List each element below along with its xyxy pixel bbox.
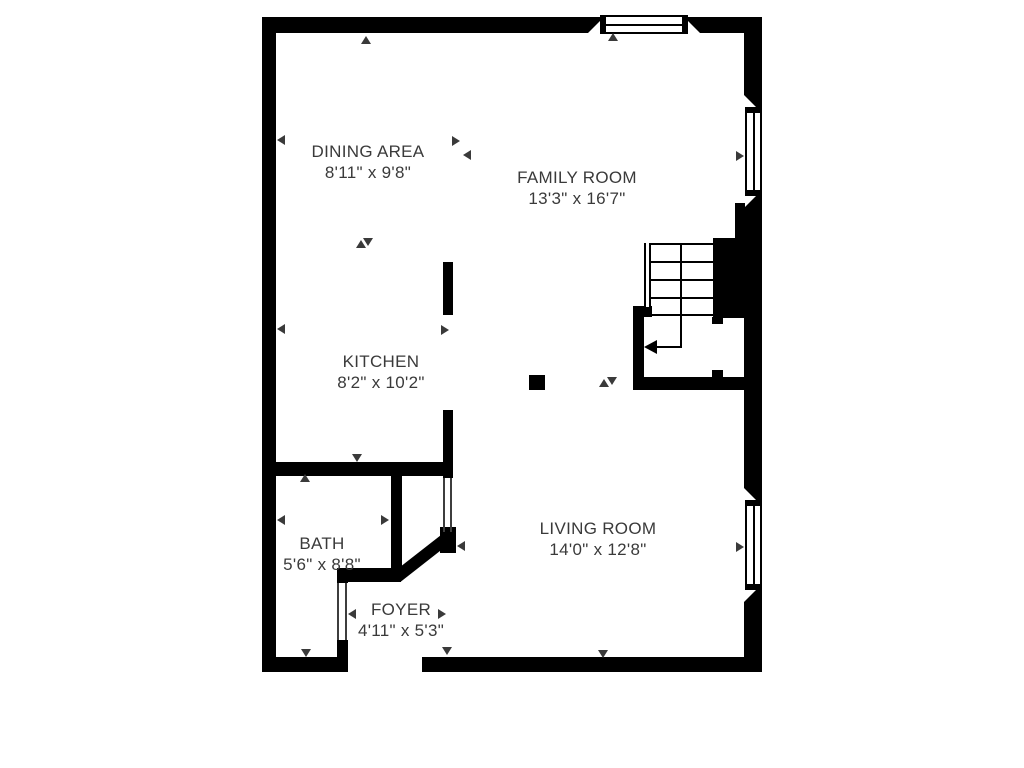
dimension-arrow-up-icon bbox=[608, 33, 618, 41]
stair-direction-line bbox=[656, 346, 682, 348]
room-label-kitchen: KITCHEN 8'2" x 10'2" bbox=[337, 351, 424, 393]
room-label-bath: BATH 5'6" x 8'8" bbox=[283, 533, 361, 575]
room-dimensions: 8'11" x 9'8" bbox=[312, 162, 425, 183]
room-name: LIVING ROOM bbox=[540, 518, 657, 539]
window-right-upper bbox=[745, 107, 762, 196]
wall-bath-right bbox=[391, 474, 402, 570]
wall-right-lower bbox=[744, 590, 762, 672]
dimension-arrow-up-icon bbox=[361, 36, 371, 44]
room-name: FAMILY ROOM bbox=[517, 167, 637, 188]
post-column bbox=[529, 375, 545, 390]
wall-foyer-lower-stub bbox=[337, 640, 348, 672]
room-label-foyer: FOYER 4'11" x 5'3" bbox=[358, 599, 444, 641]
dimension-arrow-down-icon bbox=[352, 454, 362, 462]
dimension-arrow-left-icon bbox=[277, 135, 285, 145]
doorway-jamb-line bbox=[337, 583, 339, 640]
doorway-jamb-line bbox=[345, 583, 347, 640]
room-name: DINING AREA bbox=[312, 141, 425, 162]
stair-direction-line bbox=[680, 243, 682, 348]
floorplan-canvas: DINING AREA 8'11" x 9'8" FAMILY ROOM 13'… bbox=[0, 0, 1024, 768]
dimension-arrow-right-icon bbox=[736, 542, 744, 552]
dimension-arrow-left-icon bbox=[457, 541, 465, 551]
dimension-arrow-left-icon bbox=[277, 324, 285, 334]
stairs-direction-arrow-icon bbox=[644, 340, 657, 354]
wall-understair-bottom bbox=[633, 377, 762, 390]
room-name: FOYER bbox=[358, 599, 444, 620]
room-dimensions: 14'0" x 12'8" bbox=[540, 539, 657, 560]
dimension-arrow-down-icon bbox=[607, 377, 617, 385]
wall-bottom-right bbox=[422, 657, 762, 672]
room-dimensions: 13'3" x 16'7" bbox=[517, 188, 637, 209]
closet-door-jamb bbox=[712, 370, 723, 377]
dimension-arrow-right-icon bbox=[736, 151, 744, 161]
wall-left bbox=[262, 17, 276, 672]
wall-landing-left bbox=[633, 306, 644, 390]
room-dimensions: 5'6" x 8'8" bbox=[283, 554, 361, 575]
wall-stair-block bbox=[713, 238, 745, 318]
wall-top-left bbox=[262, 17, 602, 33]
window-pane bbox=[606, 24, 682, 26]
dimension-arrow-up-icon bbox=[300, 474, 310, 482]
dimension-arrow-right-icon bbox=[381, 515, 389, 525]
room-label-dining: DINING AREA 8'11" x 9'8" bbox=[312, 141, 425, 183]
dimension-arrow-left-icon bbox=[277, 515, 285, 525]
window-pane bbox=[753, 113, 755, 190]
dimension-arrow-down-icon bbox=[363, 238, 373, 246]
window-pane bbox=[753, 506, 755, 584]
doorway-jamb-line bbox=[450, 478, 452, 532]
wall-kitchen-bath bbox=[262, 462, 453, 476]
dimension-arrow-left-icon bbox=[348, 609, 356, 619]
window-top bbox=[600, 15, 688, 34]
dimension-arrow-down-icon bbox=[598, 650, 608, 658]
room-dimensions: 4'11" x 5'3" bbox=[358, 620, 444, 641]
dimension-arrow-down-icon bbox=[442, 647, 452, 655]
dimension-arrow-right-icon bbox=[441, 325, 449, 335]
wall-bottom-left bbox=[262, 657, 348, 672]
room-dimensions: 8'2" x 10'2" bbox=[337, 372, 424, 393]
doorway-jamb-line bbox=[443, 478, 445, 532]
room-label-family: FAMILY ROOM 13'3" x 16'7" bbox=[517, 167, 637, 209]
window-right-lower bbox=[745, 500, 762, 590]
room-label-living: LIVING ROOM 14'0" x 12'8" bbox=[540, 518, 657, 560]
wall-right-middle bbox=[744, 196, 762, 500]
dimension-arrow-right-icon bbox=[452, 136, 460, 146]
dimension-arrow-down-icon bbox=[301, 649, 311, 657]
room-name: KITCHEN bbox=[337, 351, 424, 372]
closet-door-jamb bbox=[712, 317, 723, 324]
wall-kitchen-upper bbox=[443, 262, 453, 315]
dimension-arrow-left-icon bbox=[463, 150, 471, 160]
wall-stair-bump bbox=[735, 203, 745, 243]
wall-right-upper bbox=[744, 17, 762, 107]
room-name: BATH bbox=[283, 533, 361, 554]
